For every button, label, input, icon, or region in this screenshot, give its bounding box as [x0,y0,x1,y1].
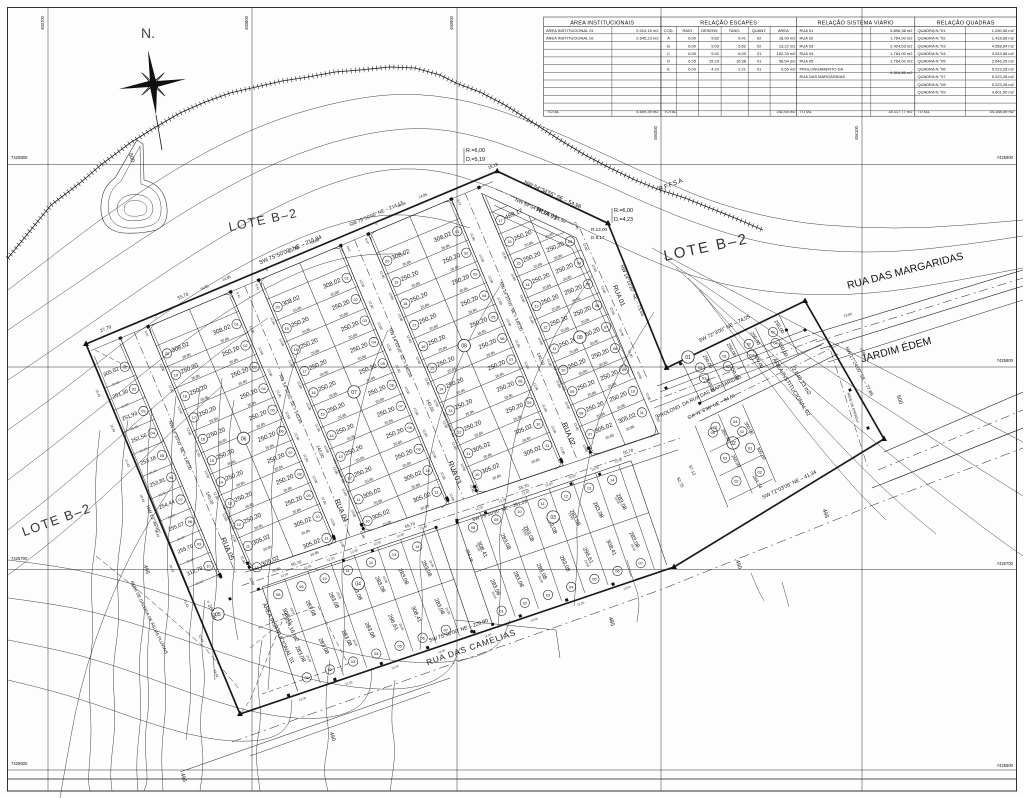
svg-text:D.=4,23: D.=4,23 [614,217,633,223]
svg-text:08: 08 [297,471,301,476]
svg-text:ÁREA: ÁREA [778,28,789,33]
svg-text:06: 06 [279,429,283,434]
svg-text:05: 05 [586,282,590,287]
svg-text:7425900: 7425900 [997,155,1014,160]
svg-text:7425700: 7425700 [11,556,28,561]
svg-text:RELAÇÃO ESCAPES: RELAÇÃO ESCAPES [700,19,757,26]
svg-text:13: 13 [448,408,452,413]
svg-text:ÁREA INSTITUCIONAL 02: ÁREA INSTITUCIONAL 02 [546,36,594,41]
svg-text:08: 08 [579,410,583,415]
svg-text:D: D [667,59,670,64]
svg-text:2.645,23 m2: 2.645,23 m2 [636,36,659,41]
svg-text:02: 02 [354,297,358,302]
svg-text:15: 15 [320,411,324,416]
svg-text:6.00: 6.00 [688,43,697,48]
svg-text:01: 01 [748,445,752,450]
svg-text:01: 01 [234,322,238,327]
svg-text:2.424,53 m2: 2.424,53 m2 [890,43,913,48]
svg-text:QUADRA N.°01: QUADRA N.°01 [918,28,947,33]
svg-text:08: 08 [276,592,280,597]
svg-text:07: 07 [509,357,513,362]
svg-text:6.00: 6.00 [738,51,747,56]
svg-text:7425700: 7425700 [997,561,1014,566]
svg-text:4.659,39 m2: 4.659,39 m2 [636,109,659,114]
svg-text:02: 02 [757,43,762,48]
svg-text:5.223,28 m2: 5.223,28 m2 [992,66,1015,71]
svg-text:19: 19 [284,326,288,331]
svg-text:QUADRA N.°08: QUADRA N.°08 [918,82,947,87]
svg-text:07: 07 [399,404,403,409]
svg-text:QUADRA N.°09: QUADRA N.°09 [918,90,947,95]
svg-text:QUADRA N.°06: QUADRA N.°06 [918,66,947,71]
svg-text:02: 02 [726,364,730,369]
svg-text:05: 05 [491,314,495,319]
svg-text:18.117,77 m2: 18.117,77 m2 [888,109,913,114]
svg-text:494100: 494100 [854,125,859,140]
svg-text:TOTAL: TOTAL [664,109,677,114]
svg-text:9.82: 9.82 [711,36,720,41]
svg-text:09: 09 [197,541,201,546]
svg-text:11: 11 [324,536,328,541]
svg-text:12: 12 [369,560,373,565]
svg-text:01: 01 [499,608,503,613]
svg-text:17: 17 [498,218,502,223]
svg-text:18: 18 [183,394,187,399]
svg-text:13: 13 [338,454,342,459]
svg-text:13,22 m2: 13,22 m2 [779,43,796,48]
svg-text:11: 11 [541,501,545,506]
svg-text:TANG.: TANG. [729,28,741,33]
svg-text:162,33 m2: 162,33 m2 [777,51,797,56]
svg-text:02: 02 [758,470,762,475]
svg-text:01: 01 [685,355,691,361]
svg-text:02: 02 [464,250,468,255]
svg-text:08: 08 [613,346,617,351]
svg-text:4.601,50 m2: 4.601,50 m2 [992,90,1015,95]
svg-text:01: 01 [757,66,762,71]
svg-text:12: 12 [543,325,547,330]
svg-text:16: 16 [421,344,425,349]
svg-text:E: E [667,66,670,71]
svg-text:D.=5,19: D.=5,19 [466,157,485,163]
svg-text:1.764,00 m2: 1.764,00 m2 [890,59,913,64]
svg-text:2.21: 2.21 [738,66,747,71]
svg-text:RUA 03: RUA 03 [800,43,815,48]
svg-text:493800: 493800 [244,15,249,30]
svg-text:18,00 m2: 18,00 m2 [779,36,796,41]
svg-text:DESENV.: DESENV. [701,28,718,33]
svg-text:7425600: 7425600 [997,763,1014,768]
svg-text:02: 02 [243,343,247,348]
svg-text:11: 11 [246,543,250,548]
svg-text:D.9,17: D.9,17 [591,235,605,240]
svg-text:1.764,00 m2: 1.764,00 m2 [890,36,913,41]
svg-text:21: 21 [757,51,762,56]
svg-text:493900: 493900 [449,15,454,30]
svg-text:12: 12 [457,429,461,434]
svg-text:07: 07 [288,450,292,455]
svg-text:11: 11 [356,497,360,502]
svg-text:04: 04 [355,582,361,588]
svg-text:18: 18 [403,301,407,306]
svg-text:4.23: 4.23 [711,66,720,71]
svg-text:06: 06 [241,436,247,442]
svg-text:1.764,00 m2: 1.764,00 m2 [890,51,913,56]
svg-text:09: 09 [494,517,498,522]
svg-text:493700: 493700 [40,15,45,30]
svg-text:05: 05 [592,577,596,582]
svg-text:0,55 m2: 0,55 m2 [781,66,796,71]
svg-text:16: 16 [311,390,315,395]
svg-text:15: 15 [430,365,434,370]
svg-text:R.13,00: R.13,00 [591,227,608,232]
svg-text:07: 07 [178,497,182,502]
svg-text:13: 13 [534,303,538,308]
svg-text:09: 09 [416,447,420,452]
svg-text:03: 03 [546,592,550,597]
svg-text:02: 02 [734,479,738,484]
svg-text:02: 02 [328,667,332,672]
svg-text:07: 07 [604,324,608,329]
svg-text:N.: N. [141,25,155,41]
svg-text:ÁREA INSTITUCIONAL 01: ÁREA INSTITUCIONAL 01 [546,28,594,33]
svg-text:18: 18 [293,347,297,352]
svg-text:03: 03 [141,409,145,414]
svg-text:A: A [667,36,670,41]
svg-text:05: 05 [397,643,401,648]
svg-text:RUA 02: RUA 02 [800,36,815,41]
svg-text:11: 11 [545,443,549,448]
svg-text:05: 05 [711,430,715,435]
svg-text:5.223,28 m2: 5.223,28 m2 [992,74,1015,79]
svg-text:B: B [667,43,670,48]
svg-text:09: 09 [577,335,583,341]
svg-text:TOTAL: TOTAL [547,109,560,114]
svg-text:R.=6,00: R.=6,00 [614,208,633,214]
svg-text:COD.: COD. [664,28,674,33]
svg-text:03: 03 [723,455,727,460]
svg-text:05: 05 [160,453,164,458]
svg-text:09: 09 [527,400,531,405]
svg-text:11: 11 [466,451,470,456]
svg-text:1.030,06 m2: 1.030,06 m2 [992,28,1015,33]
svg-text:01: 01 [771,331,775,335]
svg-text:2.646,29 m2: 2.646,29 m2 [992,59,1015,64]
svg-text:07: 07 [639,561,643,566]
svg-text:QUADRA N.°02: QUADRA N.°02 [918,36,947,41]
svg-text:7425900: 7425900 [11,155,28,160]
svg-text:R.=6,00: R.=6,00 [466,148,485,154]
svg-text:05: 05 [270,407,274,412]
svg-text:05: 05 [381,361,385,366]
svg-text:34.168,59 m2: 34.168,59 m2 [990,109,1015,114]
svg-text:01: 01 [123,364,127,369]
svg-text:01: 01 [757,59,762,64]
svg-text:6.00: 6.00 [688,66,697,71]
svg-text:08: 08 [407,425,411,430]
svg-text:02: 02 [132,386,136,391]
svg-text:06: 06 [390,382,394,387]
svg-text:RUA 04: RUA 04 [800,51,815,56]
svg-text:4.504,86 m2: 4.504,86 m2 [890,70,913,75]
svg-text:QUADRA N.°07: QUADRA N.°07 [918,74,947,79]
svg-text:09: 09 [570,389,574,394]
svg-text:08: 08 [188,519,192,524]
svg-text:RUA DAS MARGARIDAS: RUA DAS MARGARIDAS [800,74,846,79]
svg-text:06: 06 [595,303,599,308]
svg-text:9.03: 9.03 [711,43,720,48]
svg-text:12: 12 [564,493,568,498]
svg-text:6.41: 6.41 [738,36,747,41]
svg-text:11: 11 [640,410,644,415]
svg-text:494000: 494000 [653,125,658,140]
svg-text:7425800: 7425800 [997,358,1014,363]
svg-text:02: 02 [747,343,751,347]
svg-text:15.23: 15.23 [709,59,720,64]
svg-text:QUADRA N.°05: QUADRA N.°05 [918,59,947,64]
svg-text:ÁREA INSTITUCIONAIS: ÁREA INSTITUCIONAIS [570,19,634,26]
svg-text:07: 07 [588,432,592,437]
svg-text:12: 12 [347,476,351,481]
svg-text:TOTAL: TOTAL [800,109,813,114]
svg-text:TOTAL: TOTAL [918,109,931,114]
svg-text:12: 12 [237,522,241,527]
svg-text:01: 01 [702,375,706,380]
svg-text:03: 03 [363,318,367,323]
svg-text:03: 03 [568,239,572,244]
svg-text:7425600: 7425600 [11,761,28,766]
svg-text:1.418,68 m2: 1.418,68 m2 [992,36,1015,41]
svg-text:06: 06 [615,569,619,574]
svg-text:RELAÇÃO QUADRAS: RELAÇÃO QUADRAS [937,19,995,26]
svg-text:4.558,54 m2: 4.558,54 m2 [992,43,1015,48]
svg-text:02: 02 [740,430,744,434]
svg-text:17: 17 [412,323,416,328]
svg-text:08: 08 [461,344,467,350]
svg-text:06: 06 [500,336,504,341]
svg-text:02: 02 [523,600,527,605]
svg-text:15: 15 [516,261,520,266]
svg-text:6.00: 6.00 [688,51,697,56]
svg-text:4.243,68 m2: 4.243,68 m2 [992,51,1015,56]
svg-text:5.896,38 m2: 5.896,38 m2 [890,28,913,33]
svg-text:QUANT.: QUANT. [752,28,767,33]
svg-text:03: 03 [550,515,556,521]
svg-text:9.42: 9.42 [711,51,720,56]
svg-text:RELAÇÃO SISTEMA VIÁRIO: RELAÇÃO SISTEMA VIÁRIO [817,19,894,26]
svg-text:17: 17 [302,369,306,374]
svg-text:19: 19 [394,280,398,285]
svg-text:2.014,16 m2: 2.014,16 m2 [636,28,659,33]
svg-text:13: 13 [392,552,396,557]
svg-text:16: 16 [201,437,205,442]
svg-text:C: C [667,51,670,56]
svg-text:03: 03 [252,365,256,370]
svg-text:6.00: 6.00 [688,36,697,41]
svg-text:15: 15 [210,458,214,463]
svg-text:17: 17 [192,415,196,420]
svg-text:08: 08 [518,379,522,384]
svg-text:13: 13 [587,485,591,490]
svg-text:01: 01 [345,275,349,280]
svg-text:5.62: 5.62 [738,43,747,48]
svg-text:06: 06 [169,475,173,480]
svg-text:07: 07 [351,390,357,396]
svg-text:RAIO: RAIO [683,28,693,33]
svg-text:252,64 m2: 252,64 m2 [777,109,797,114]
svg-text:58,54 m2: 58,54 m2 [779,59,796,64]
svg-text:09: 09 [306,493,310,498]
svg-text:11: 11 [435,489,439,494]
svg-text:11: 11 [552,346,556,351]
svg-text:03: 03 [722,354,726,358]
svg-text:6.25: 6.25 [688,59,697,64]
svg-text:11: 11 [346,568,350,573]
svg-text:5.223,28 m2: 5.223,28 m2 [992,82,1015,87]
svg-text:01: 01 [455,229,459,234]
svg-text:03: 03 [473,272,477,277]
svg-text:01: 01 [305,675,309,680]
svg-text:RUA 05: RUA 05 [800,59,815,64]
svg-text:QUADRA N.°03: QUADRA N.°03 [918,43,947,48]
svg-text:06: 06 [420,635,424,640]
svg-text:16.98: 16.98 [736,59,747,64]
svg-text:PROLONGAMENTO DA: PROLONGAMENTO DA [800,66,844,71]
svg-text:09: 09 [299,584,303,589]
svg-text:02: 02 [757,36,762,41]
svg-text:08: 08 [471,525,475,530]
svg-text:13: 13 [228,501,232,506]
svg-text:03: 03 [351,659,355,664]
svg-text:RUA 01: RUA 01 [800,28,815,33]
svg-text:QUADRA N.°04: QUADRA N.°04 [918,51,947,56]
svg-text:09: 09 [622,367,626,372]
svg-text:19: 19 [174,372,178,377]
svg-text:16: 16 [507,239,511,244]
